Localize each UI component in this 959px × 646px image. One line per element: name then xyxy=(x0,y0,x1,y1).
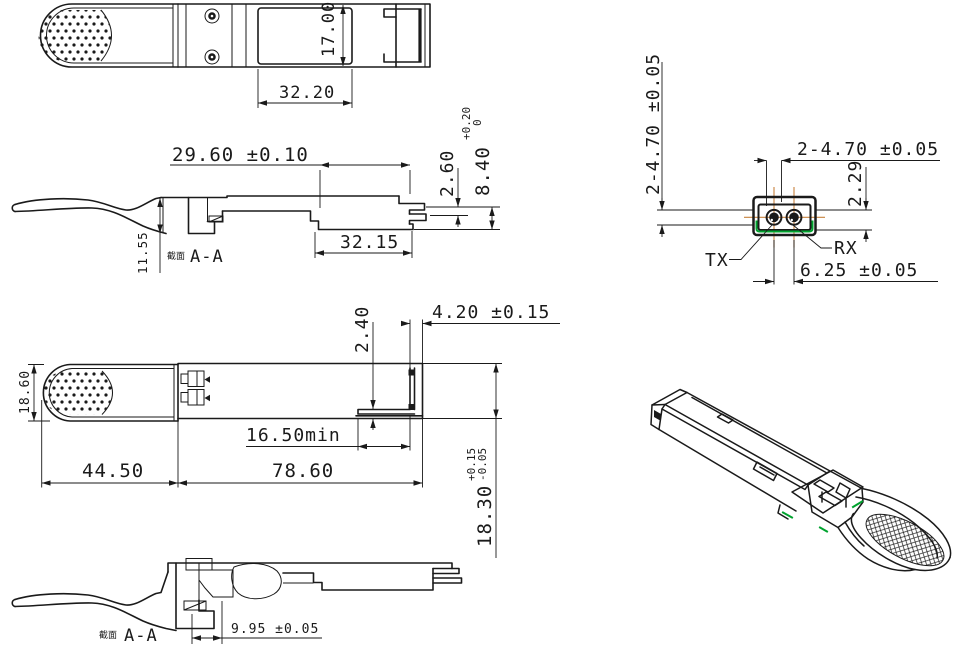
iso-latch-end xyxy=(778,470,863,532)
hatched-wedge xyxy=(199,570,233,597)
isometric-view xyxy=(651,390,951,577)
top-view-dimensions: 17.00 32.20 xyxy=(258,1,352,108)
dim-17-00: 17.00 xyxy=(319,1,339,57)
dim-port-pitch: 6.25 ±0.05 xyxy=(800,260,918,281)
dim-port-dia-horizontal: 2-4.70 ±0.05 xyxy=(797,139,939,160)
connector-face-view: 2-4.70 ±0.05 2-4.70 ±0.05 2.29 6.25 ±0.0… xyxy=(643,53,940,285)
dim-32-20: 32.20 xyxy=(279,83,335,103)
latch-plug-lower xyxy=(181,390,210,406)
dim-8-40-tol-lower: 0 xyxy=(471,119,484,126)
dim-2-29: 2.29 xyxy=(845,160,866,207)
dim-32-15: 32.15 xyxy=(340,232,399,253)
dim-11-55: 11.55 xyxy=(135,231,150,274)
section-label-a-a: A-A xyxy=(190,247,224,267)
technical-drawing-page: 17.00 32.20 29.60 ±0.10 xyxy=(0,0,959,646)
screw-bottom xyxy=(205,50,219,64)
iso-body xyxy=(651,390,830,512)
dim-2-40: 2.40 xyxy=(352,306,373,353)
pull-tab-grip-texture-bottom xyxy=(44,371,113,415)
pull-tab-grip-texture xyxy=(39,10,112,61)
tx-label: TX xyxy=(705,250,729,271)
dim-16-50-min: 16.50min xyxy=(246,425,341,446)
connector-face-dimensions: 2-4.70 ±0.05 2-4.70 ±0.05 2.29 6.25 ±0.0… xyxy=(643,53,940,285)
dim-4-20: 4.20 ±0.15 xyxy=(432,302,550,323)
iso-green-edge-3 xyxy=(820,528,827,532)
crosshatched-boot xyxy=(232,564,282,599)
dim-18-60: 18.60 xyxy=(18,370,33,414)
section-label-prefix-2: 截面 xyxy=(99,629,117,641)
dim-29-60: 29.60 ±0.10 xyxy=(172,144,309,166)
qsfp-transceiver-drawing: 17.00 32.20 29.60 ±0.10 xyxy=(0,0,959,646)
dim-44-50: 44.50 xyxy=(82,460,144,482)
side-section-view: 29.60 ±0.10 32.15 2.60 8.40 +0.20 0 11.5… xyxy=(12,107,500,274)
iso-pull-tab xyxy=(838,489,951,577)
dim-2-60: 2.60 xyxy=(437,150,458,197)
bottom-section-outline xyxy=(12,559,461,631)
latch-plug-upper xyxy=(181,371,210,387)
bottom-view: 18.60 44.50 78.60 16.50min 2.40 4.20 ±0.… xyxy=(18,302,560,558)
dim-9-95: 9.95 ±0.05 xyxy=(231,622,319,637)
section-label-prefix: 截面 xyxy=(167,250,185,262)
screw-top xyxy=(205,9,219,23)
iso-end-detail xyxy=(654,410,661,421)
dim-8-40: 8.40 xyxy=(472,146,494,196)
bottom-view-outline xyxy=(43,364,422,422)
top-view: 17.00 32.20 xyxy=(39,1,431,108)
dim-port-dia-vertical: 2-4.70 ±0.05 xyxy=(643,53,664,195)
iso-thumb-pad-texture xyxy=(859,504,952,576)
side-section-dimensions: 29.60 ±0.10 32.15 2.60 8.40 +0.20 0 11.5… xyxy=(135,107,500,274)
iso-top-vent xyxy=(718,414,734,423)
connector-face-outline xyxy=(754,197,816,235)
section-label-a-a-2: A-A xyxy=(124,626,158,646)
bottom-section-dimensions: 9.95 ±0.05 截面 A-A xyxy=(99,601,322,646)
side-section-outline xyxy=(12,196,426,234)
end-bracket xyxy=(356,368,423,416)
bottom-view-dimensions: 18.60 44.50 78.60 16.50min 2.40 4.20 ±0.… xyxy=(18,302,560,558)
dim-18-30-tol-lower: -0.05 xyxy=(476,448,489,481)
rx-label: RX xyxy=(834,238,858,259)
dim-18-30: 18.30 xyxy=(474,485,496,547)
dim-78-60: 78.60 xyxy=(272,460,334,482)
bottom-section-view: 9.95 ±0.05 截面 A-A xyxy=(12,559,461,646)
top-view-outline xyxy=(39,4,431,67)
